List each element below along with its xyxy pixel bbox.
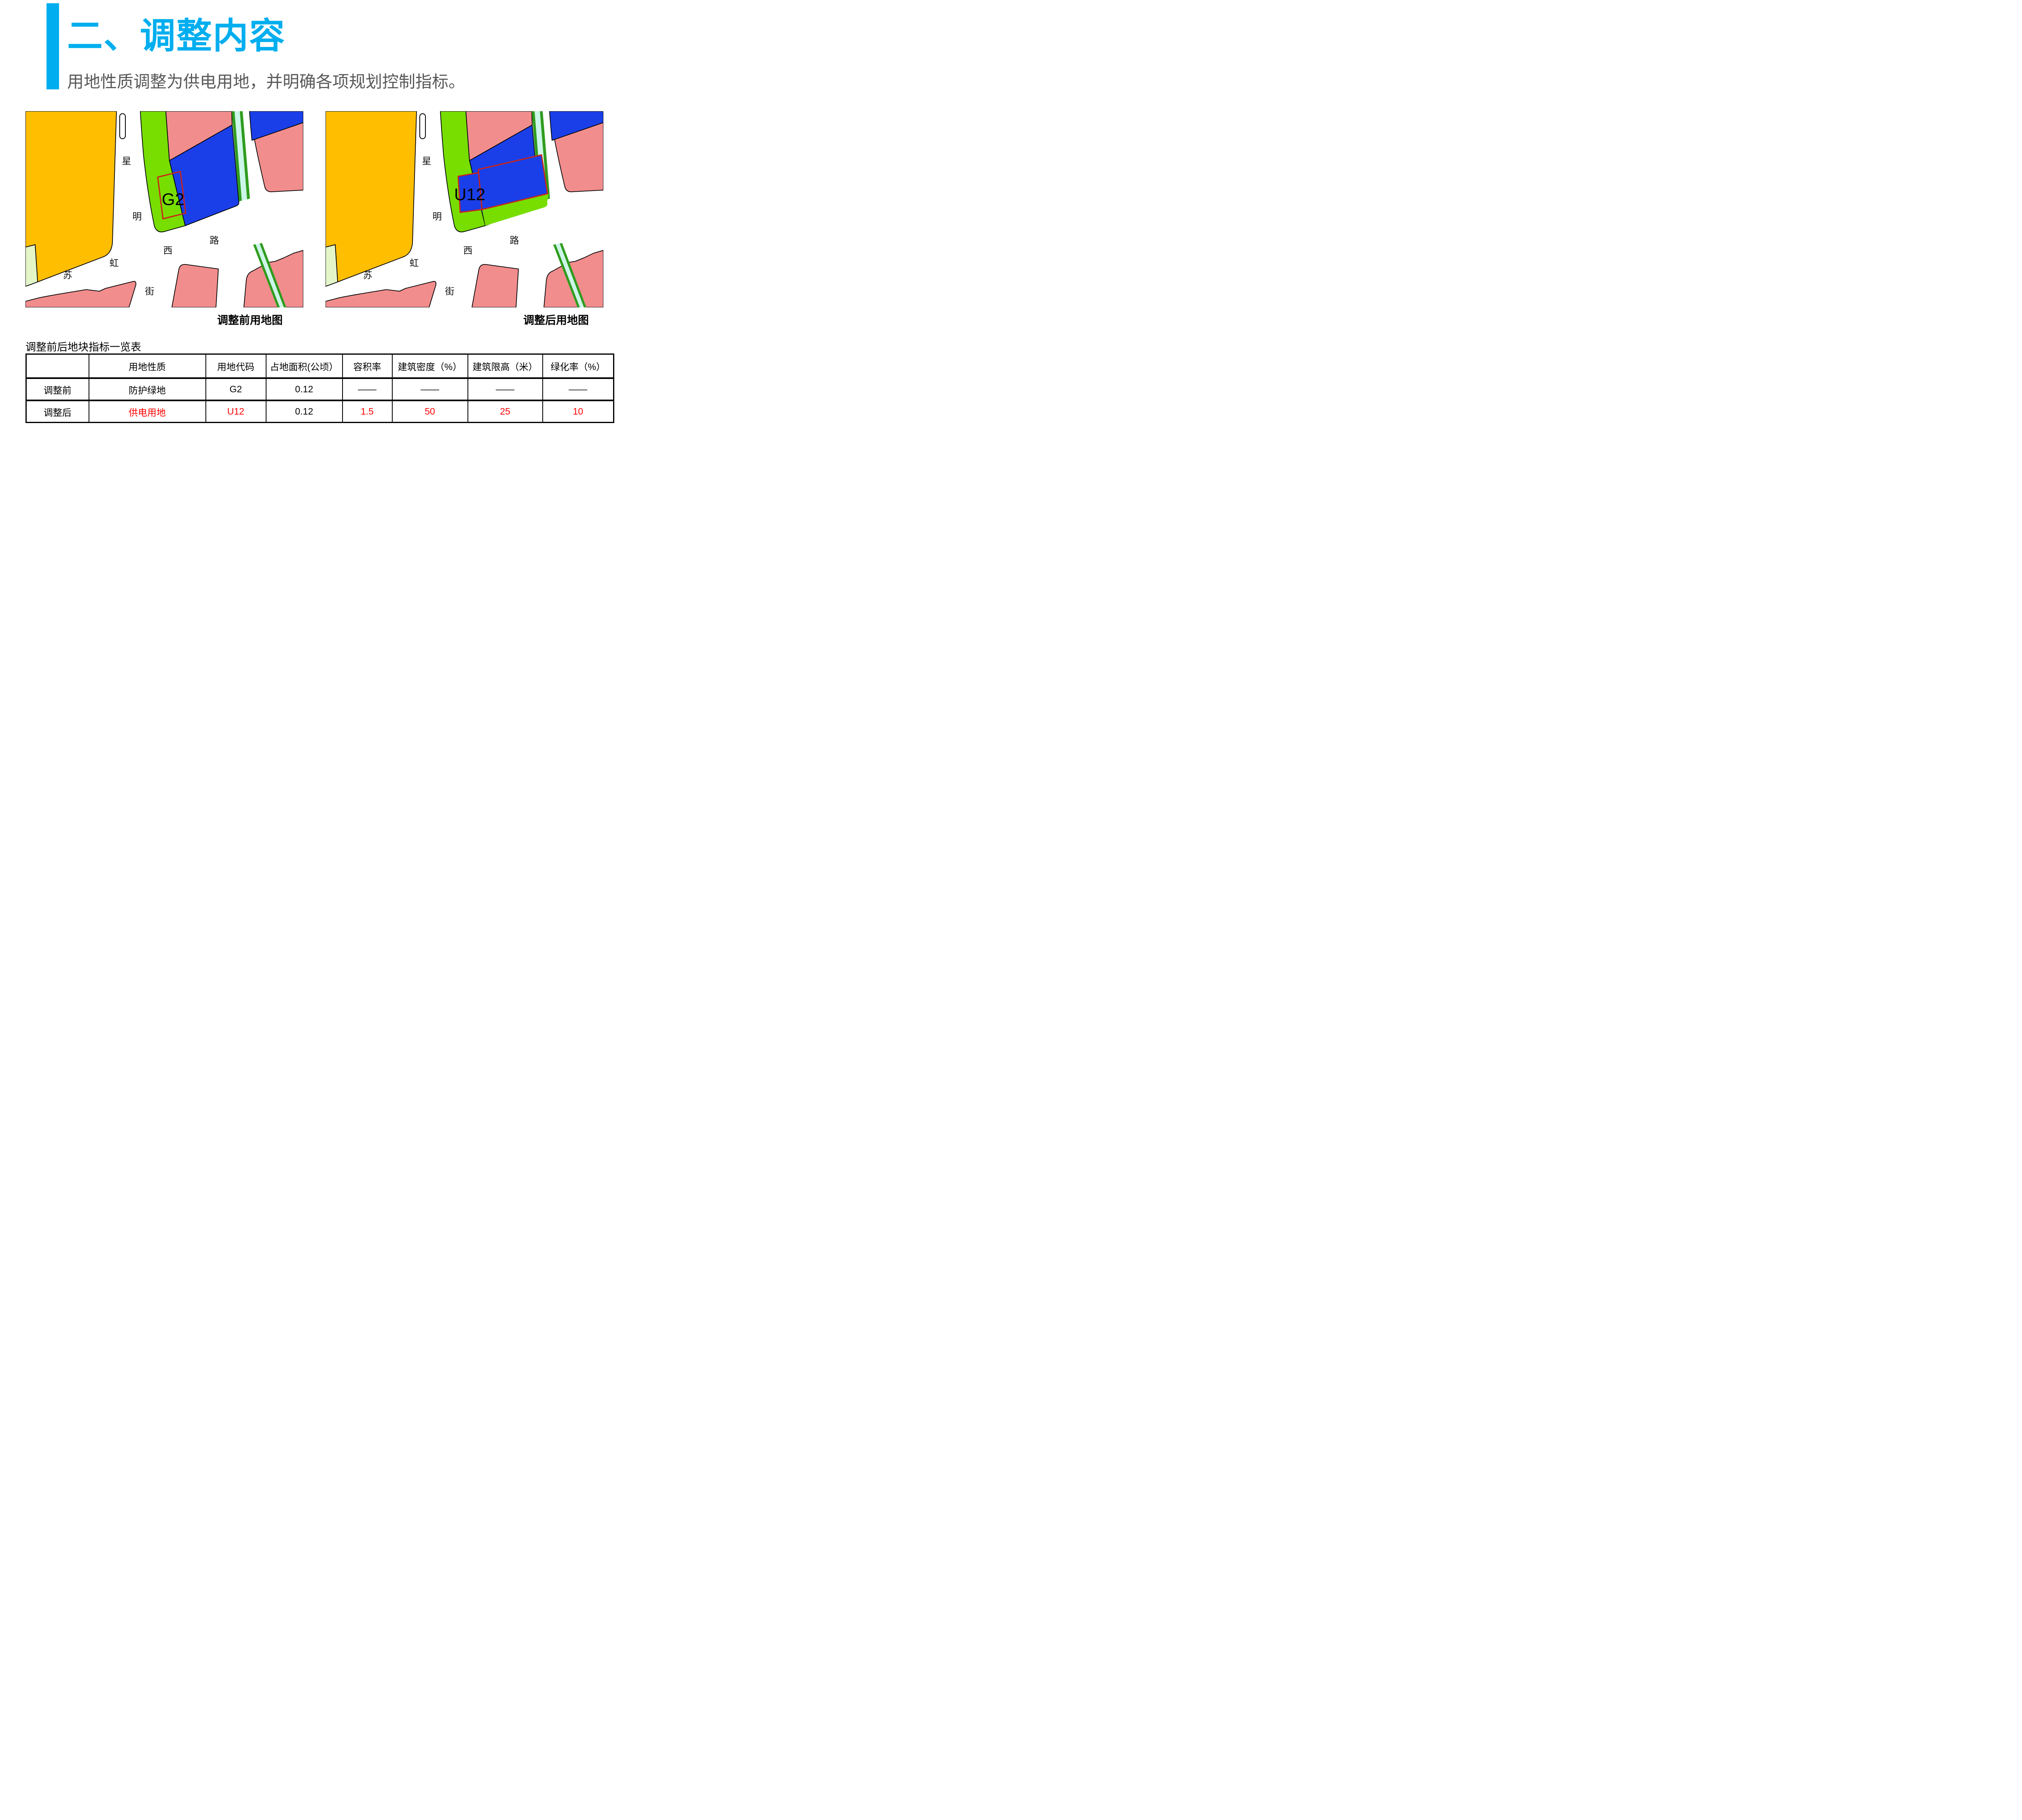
table-header-row: 用地性质 用地代码 占地面积(公顷） 容积率 建筑密度（%） 建筑限高（米） 绿… (26, 354, 614, 379)
parcel-pink-south (172, 265, 218, 307)
header-density: 建筑密度（%） (392, 354, 468, 379)
header-height: 建筑限高（米） (468, 354, 543, 379)
cell-height: —— (468, 378, 543, 400)
cell-code: U12 (206, 400, 266, 423)
cell-far: —— (343, 378, 392, 400)
table-title: 调整前后地块指标一览表 (25, 339, 141, 354)
street-label-ming: 明 (433, 211, 442, 222)
street-label-xing: 星 (422, 156, 431, 166)
parcel-pale-green (326, 245, 338, 286)
parcel-pink-southwest (25, 281, 136, 307)
cell-area: 0.12 (266, 400, 343, 423)
cell-density: 50 (392, 400, 468, 423)
header-area: 占地面积(公顷） (266, 354, 343, 379)
cell-green-rate: —— (543, 378, 614, 400)
parcel-orange (326, 111, 417, 282)
page-subtitle: 用地性质调整为供电用地，并明确各项规划控制指标。 (67, 68, 465, 92)
page-title: 二、调整内容 (67, 7, 286, 59)
header-empty (26, 354, 89, 379)
street-label-ming: 明 (133, 211, 142, 222)
cell-land-use: 供电用地 (89, 400, 206, 423)
street-label-su: 苏 (63, 270, 72, 280)
header-land-use: 用地性质 (89, 354, 206, 379)
street-label-su: 苏 (363, 270, 372, 280)
street-label-jie: 街 (145, 286, 154, 296)
header-far: 容积率 (343, 354, 392, 379)
table-row-after: 调整后 供电用地 U12 0.12 1.5 50 25 10 (26, 400, 614, 423)
street-label-xi: 西 (463, 245, 473, 256)
indicator-table: 用地性质 用地代码 占地面积(公顷） 容积率 建筑密度（%） 建筑限高（米） 绿… (25, 353, 614, 423)
street-label-lu: 路 (210, 235, 219, 245)
title-accent-bar (47, 3, 59, 89)
landuse-map-before: G2 星 明 西 路 虹 苏 街 (25, 111, 303, 307)
landuse-map-after: U12 星 明 西 路 虹 苏 街 (326, 111, 603, 307)
parcel-pink-southwest (326, 281, 436, 307)
cell-label: 调整后 (26, 400, 89, 423)
cell-green-rate: 10 (543, 400, 614, 423)
street-label-lu: 路 (510, 235, 519, 245)
street-label-hong: 虹 (110, 258, 119, 268)
parcel-pink-south (472, 265, 518, 307)
street-label-xing: 星 (122, 156, 131, 166)
road-median-island (420, 114, 425, 139)
parcel-pale-green (25, 245, 38, 286)
street-label-jie: 街 (445, 286, 455, 296)
cell-land-use: 防护绿地 (89, 378, 206, 400)
header-code: 用地代码 (206, 354, 266, 379)
street-label-xi: 西 (163, 245, 173, 256)
header-green-rate: 绿化率（%） (543, 354, 614, 379)
cell-height: 25 (468, 400, 543, 423)
cell-code: G2 (206, 378, 266, 400)
map-caption-after: 调整后用地图 (523, 311, 589, 327)
plot-label-u12: U12 (454, 185, 485, 204)
street-label-hong: 虹 (410, 258, 419, 268)
cell-label: 调整前 (26, 378, 89, 400)
cell-far: 1.5 (343, 400, 392, 423)
road-median-island (120, 114, 125, 139)
plot-label-g2: G2 (162, 190, 184, 209)
cell-density: —— (392, 378, 468, 400)
parcel-orange (25, 111, 116, 282)
cell-area: 0.12 (266, 378, 343, 400)
map-caption-before: 调整前用地图 (217, 311, 283, 327)
table-row-before: 调整前 防护绿地 G2 0.12 —— —— —— —— (26, 378, 614, 400)
